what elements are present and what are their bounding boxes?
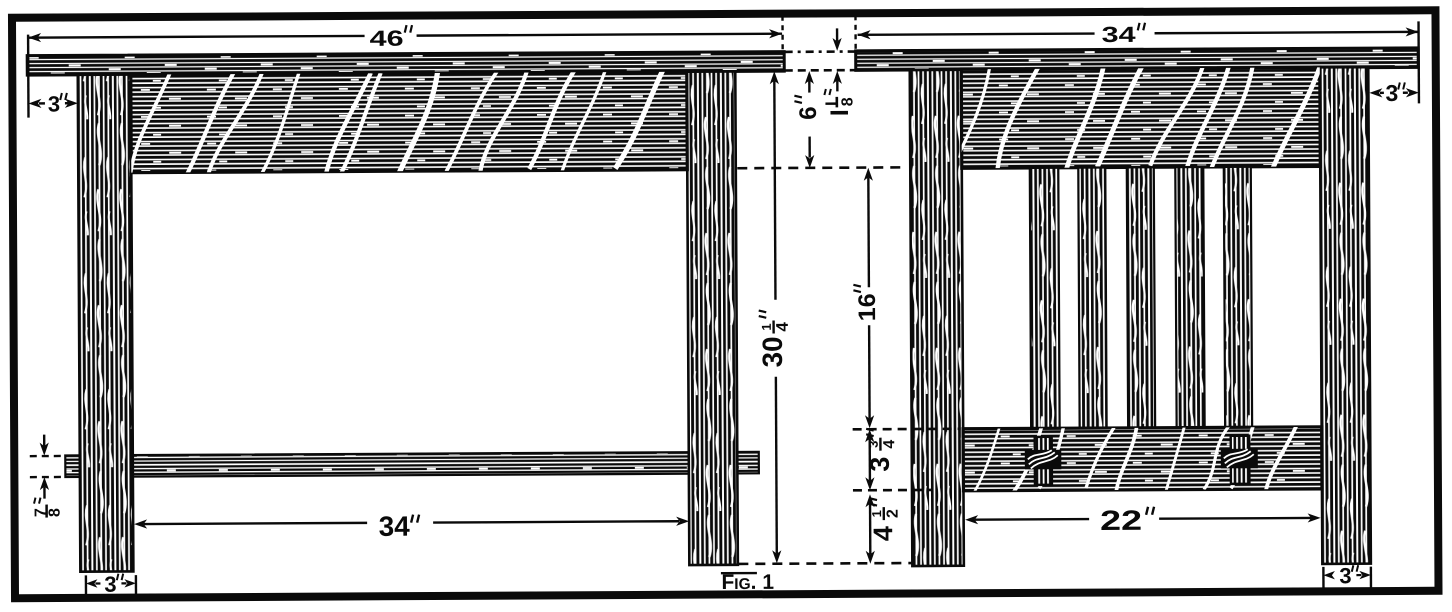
svg-text:2: 2	[885, 509, 902, 518]
svg-text:1: 1	[759, 323, 774, 330]
svg-text:46: 46	[370, 26, 404, 51]
svg-text:4: 4	[773, 322, 792, 332]
svg-text:3: 3	[104, 572, 116, 597]
svg-text:3: 3	[865, 457, 895, 472]
svg-text:3: 3	[866, 441, 881, 448]
svg-text:34: 34	[379, 511, 411, 542]
svg-text:16: 16	[854, 293, 881, 321]
svg-text:6: 6	[795, 106, 822, 120]
svg-text:34: 34	[1102, 22, 1137, 47]
svg-text:22: 22	[1100, 505, 1142, 536]
svg-text:4: 4	[881, 440, 898, 449]
svg-text:8: 8	[839, 97, 856, 106]
svg-text:3: 3	[48, 91, 60, 116]
svg-text:4: 4	[868, 526, 898, 541]
svg-text:1: 1	[869, 510, 884, 517]
svg-text:3: 3	[1339, 563, 1351, 588]
svg-text:8: 8	[47, 508, 64, 517]
svg-text:3: 3	[1385, 80, 1398, 106]
svg-text:30: 30	[757, 336, 788, 367]
